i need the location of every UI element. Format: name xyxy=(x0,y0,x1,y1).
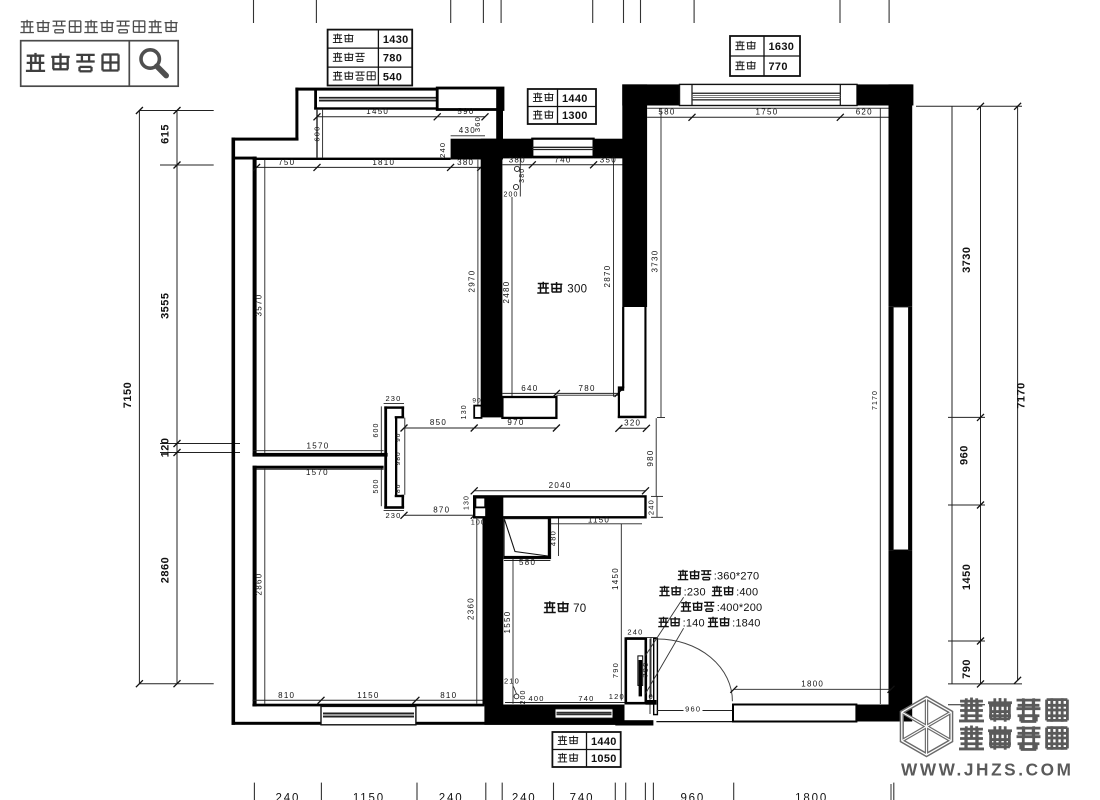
svg-text:780: 780 xyxy=(383,53,402,65)
svg-text:960: 960 xyxy=(685,705,701,714)
svg-text:540: 540 xyxy=(383,71,402,83)
svg-text:960: 960 xyxy=(959,445,971,465)
svg-text:740: 740 xyxy=(554,155,571,164)
svg-text:1750: 1750 xyxy=(756,108,779,117)
svg-text:480: 480 xyxy=(548,530,557,546)
svg-text:240: 240 xyxy=(627,628,643,637)
svg-text:300: 300 xyxy=(567,283,587,295)
svg-text:780: 780 xyxy=(578,384,595,393)
svg-text:2360: 2360 xyxy=(467,597,476,620)
svg-text:2860: 2860 xyxy=(160,557,172,583)
svg-text:130: 130 xyxy=(461,404,468,419)
svg-text::400: :400 xyxy=(736,586,758,598)
svg-text:130: 130 xyxy=(463,495,470,510)
svg-text:7170: 7170 xyxy=(872,390,879,410)
svg-text:790: 790 xyxy=(961,659,973,679)
svg-text:3730: 3730 xyxy=(961,246,973,272)
svg-text:320: 320 xyxy=(624,418,641,427)
svg-text:850: 850 xyxy=(430,418,447,427)
svg-text:230: 230 xyxy=(385,511,401,520)
svg-text:380: 380 xyxy=(519,168,526,183)
svg-text:615: 615 xyxy=(160,124,172,144)
svg-text:210: 210 xyxy=(504,677,520,686)
svg-text:1630: 1630 xyxy=(769,41,795,53)
svg-text:1450: 1450 xyxy=(611,567,620,590)
svg-text:1450: 1450 xyxy=(366,107,389,116)
svg-text:400: 400 xyxy=(529,694,545,703)
svg-text:200: 200 xyxy=(503,191,518,198)
svg-text:1150: 1150 xyxy=(353,793,385,800)
svg-text:1430: 1430 xyxy=(383,34,409,46)
svg-text:810: 810 xyxy=(278,691,295,700)
svg-text:1150: 1150 xyxy=(588,515,610,524)
svg-text:740: 740 xyxy=(570,793,595,800)
svg-text:1300: 1300 xyxy=(562,110,588,122)
svg-text:240: 240 xyxy=(512,793,537,800)
svg-text:750: 750 xyxy=(278,158,295,167)
svg-text:240: 240 xyxy=(439,793,464,800)
svg-text:240: 240 xyxy=(646,499,655,515)
svg-text:1550: 1550 xyxy=(503,611,512,634)
svg-text:1440: 1440 xyxy=(562,93,588,105)
svg-text:2870: 2870 xyxy=(603,265,612,288)
svg-text:810: 810 xyxy=(440,691,457,700)
svg-text:80: 80 xyxy=(395,484,402,493)
svg-text:7170: 7170 xyxy=(1016,382,1028,408)
svg-text:870: 870 xyxy=(433,506,450,515)
svg-text:590: 590 xyxy=(457,107,474,116)
svg-text:1050: 1050 xyxy=(591,753,617,765)
svg-text::140: :140 xyxy=(683,617,705,629)
svg-text:90: 90 xyxy=(395,433,402,442)
svg-text:770: 770 xyxy=(769,61,788,73)
svg-text:240: 240 xyxy=(276,793,301,800)
svg-text:2040: 2040 xyxy=(549,481,572,490)
svg-text:960: 960 xyxy=(680,793,705,800)
svg-text:240: 240 xyxy=(438,142,447,158)
svg-text:1810: 1810 xyxy=(372,158,395,167)
svg-text:230: 230 xyxy=(385,394,401,403)
svg-text:2970: 2970 xyxy=(468,270,477,293)
svg-text:1800: 1800 xyxy=(795,793,828,800)
svg-text:1800: 1800 xyxy=(801,680,824,689)
svg-text:1570: 1570 xyxy=(307,441,330,450)
svg-text:1450: 1450 xyxy=(961,564,973,590)
svg-text:90: 90 xyxy=(472,398,481,405)
svg-text:790: 790 xyxy=(611,662,620,678)
svg-text:2860: 2860 xyxy=(254,573,263,596)
svg-text:200: 200 xyxy=(520,689,527,704)
svg-text:790: 790 xyxy=(641,661,650,677)
svg-text::400*200: :400*200 xyxy=(717,602,763,614)
svg-text:980: 980 xyxy=(646,449,655,466)
svg-text:360: 360 xyxy=(473,116,482,132)
svg-text:1440: 1440 xyxy=(591,736,617,748)
svg-text:600: 600 xyxy=(313,126,322,142)
svg-text:350: 350 xyxy=(600,155,617,164)
svg-text:970: 970 xyxy=(507,418,524,427)
svg-text:380: 380 xyxy=(457,158,474,167)
svg-text:380: 380 xyxy=(509,155,526,164)
svg-text:2480: 2480 xyxy=(502,281,511,304)
svg-text:120: 120 xyxy=(160,438,172,458)
svg-text:100: 100 xyxy=(471,520,486,527)
svg-text:1570: 1570 xyxy=(306,468,329,477)
svg-text:3730: 3730 xyxy=(651,250,660,273)
svg-text:3555: 3555 xyxy=(160,292,172,318)
svg-text:3570: 3570 xyxy=(254,294,263,317)
svg-text:70: 70 xyxy=(573,603,586,615)
svg-text::1840: :1840 xyxy=(732,617,761,629)
svg-text:620: 620 xyxy=(856,108,873,117)
svg-text:600: 600 xyxy=(373,422,380,437)
svg-text:7150: 7150 xyxy=(122,382,134,408)
svg-text:580: 580 xyxy=(519,558,536,567)
svg-text:500: 500 xyxy=(373,478,380,493)
svg-text:120: 120 xyxy=(609,692,625,701)
svg-text:WWW.JHZS.COM: WWW.JHZS.COM xyxy=(901,760,1074,780)
svg-text:980: 980 xyxy=(395,451,402,465)
svg-text:1150: 1150 xyxy=(357,691,379,700)
svg-text:640: 640 xyxy=(521,384,538,393)
svg-text::230: :230 xyxy=(684,586,706,598)
svg-text::360*270: :360*270 xyxy=(714,570,760,582)
svg-text:740: 740 xyxy=(578,694,594,703)
